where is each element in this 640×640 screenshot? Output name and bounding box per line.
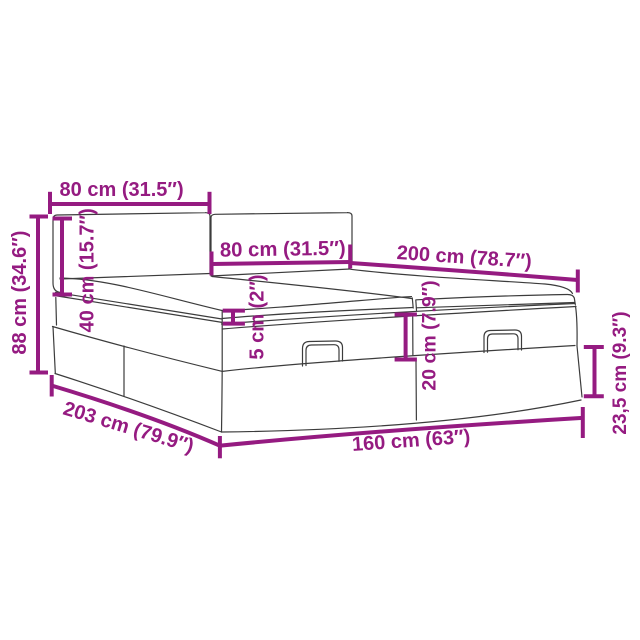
svg-text:80 cm (31.5″): 80 cm (31.5″) xyxy=(220,238,346,262)
svg-text:40 cm (15.7″): 40 cm (15.7″) xyxy=(76,208,98,332)
svg-text:20 cm (7.9″): 20 cm (7.9″) xyxy=(418,280,440,390)
svg-text:5 cm (2″): 5 cm (2″) xyxy=(247,274,269,359)
svg-text:80 cm (31.5″): 80 cm (31.5″) xyxy=(60,179,184,201)
svg-text:88 cm (34.6″): 88 cm (34.6″) xyxy=(9,231,31,355)
svg-text:23,5 cm (9.3″): 23,5 cm (9.3″) xyxy=(610,311,631,434)
